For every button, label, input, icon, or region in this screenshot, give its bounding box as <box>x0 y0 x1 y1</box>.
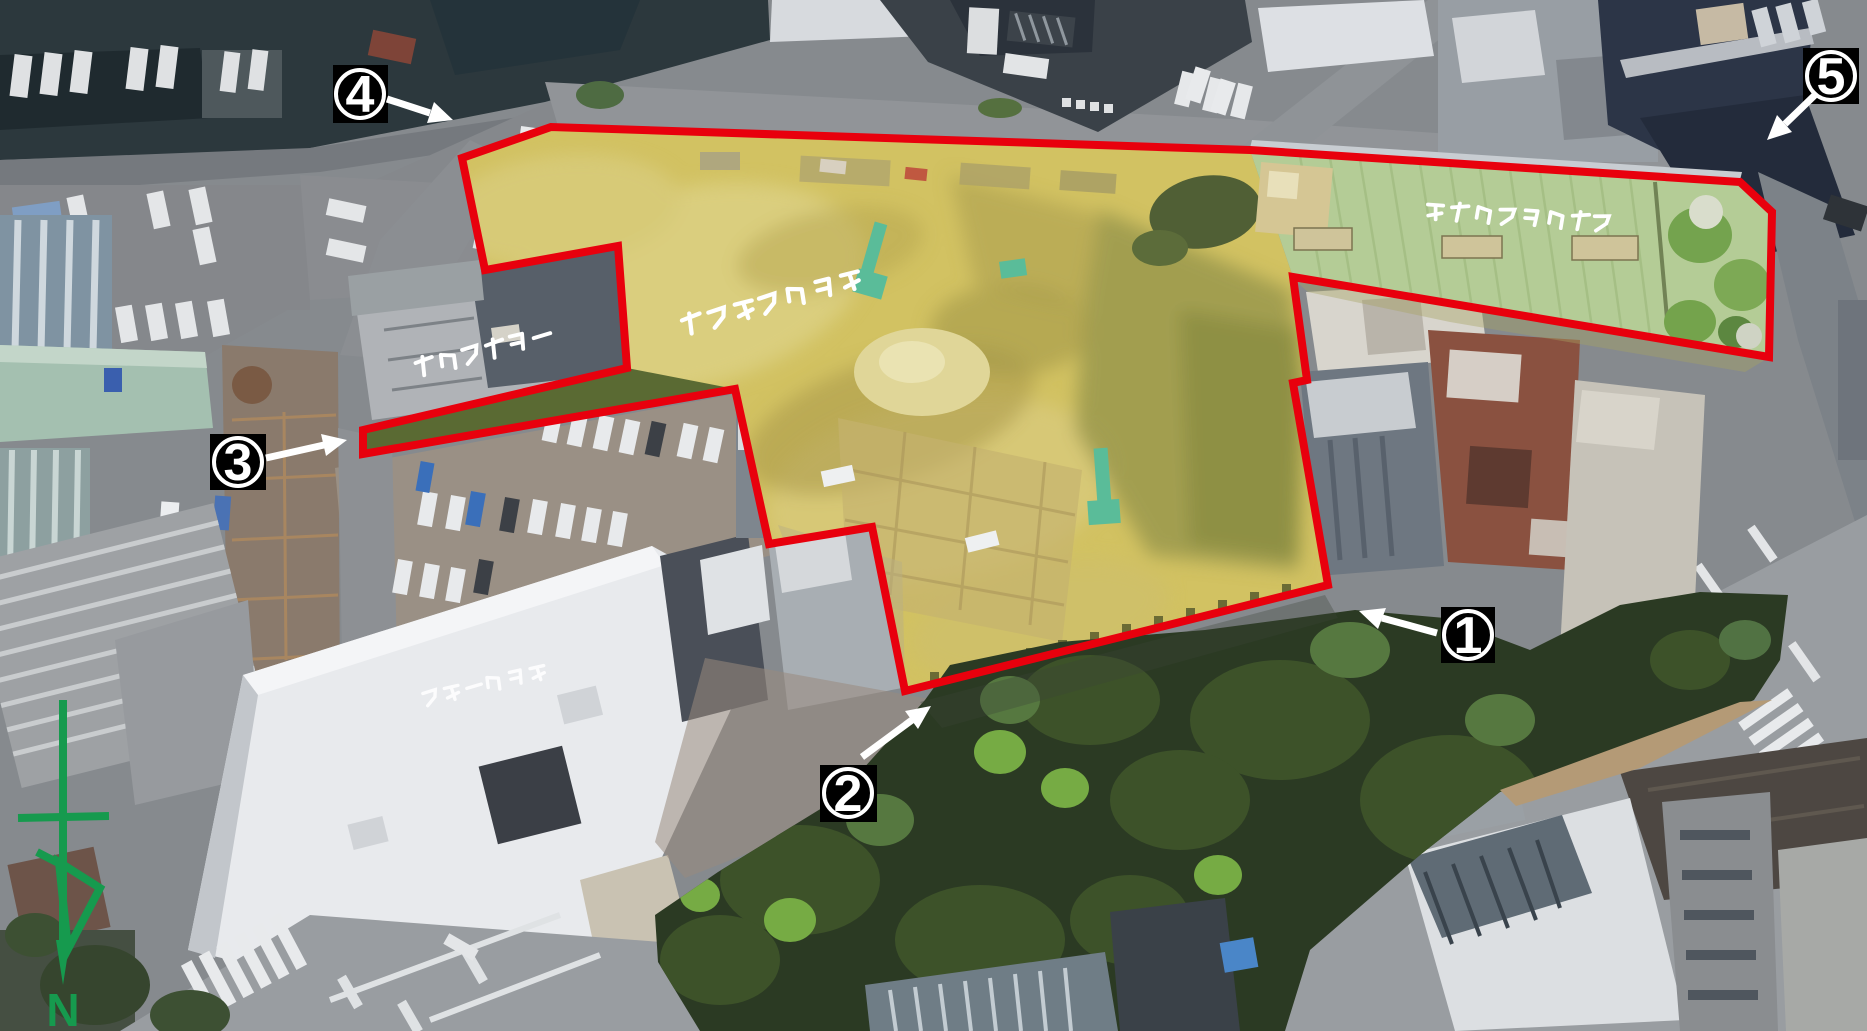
svg-text:5: 5 <box>1817 48 1846 106</box>
svg-text:1: 1 <box>1454 607 1483 665</box>
svg-text:4: 4 <box>346 66 375 124</box>
svg-text:3: 3 <box>224 434 253 492</box>
svg-text:N: N <box>46 984 79 1031</box>
svg-text:2: 2 <box>834 765 863 823</box>
